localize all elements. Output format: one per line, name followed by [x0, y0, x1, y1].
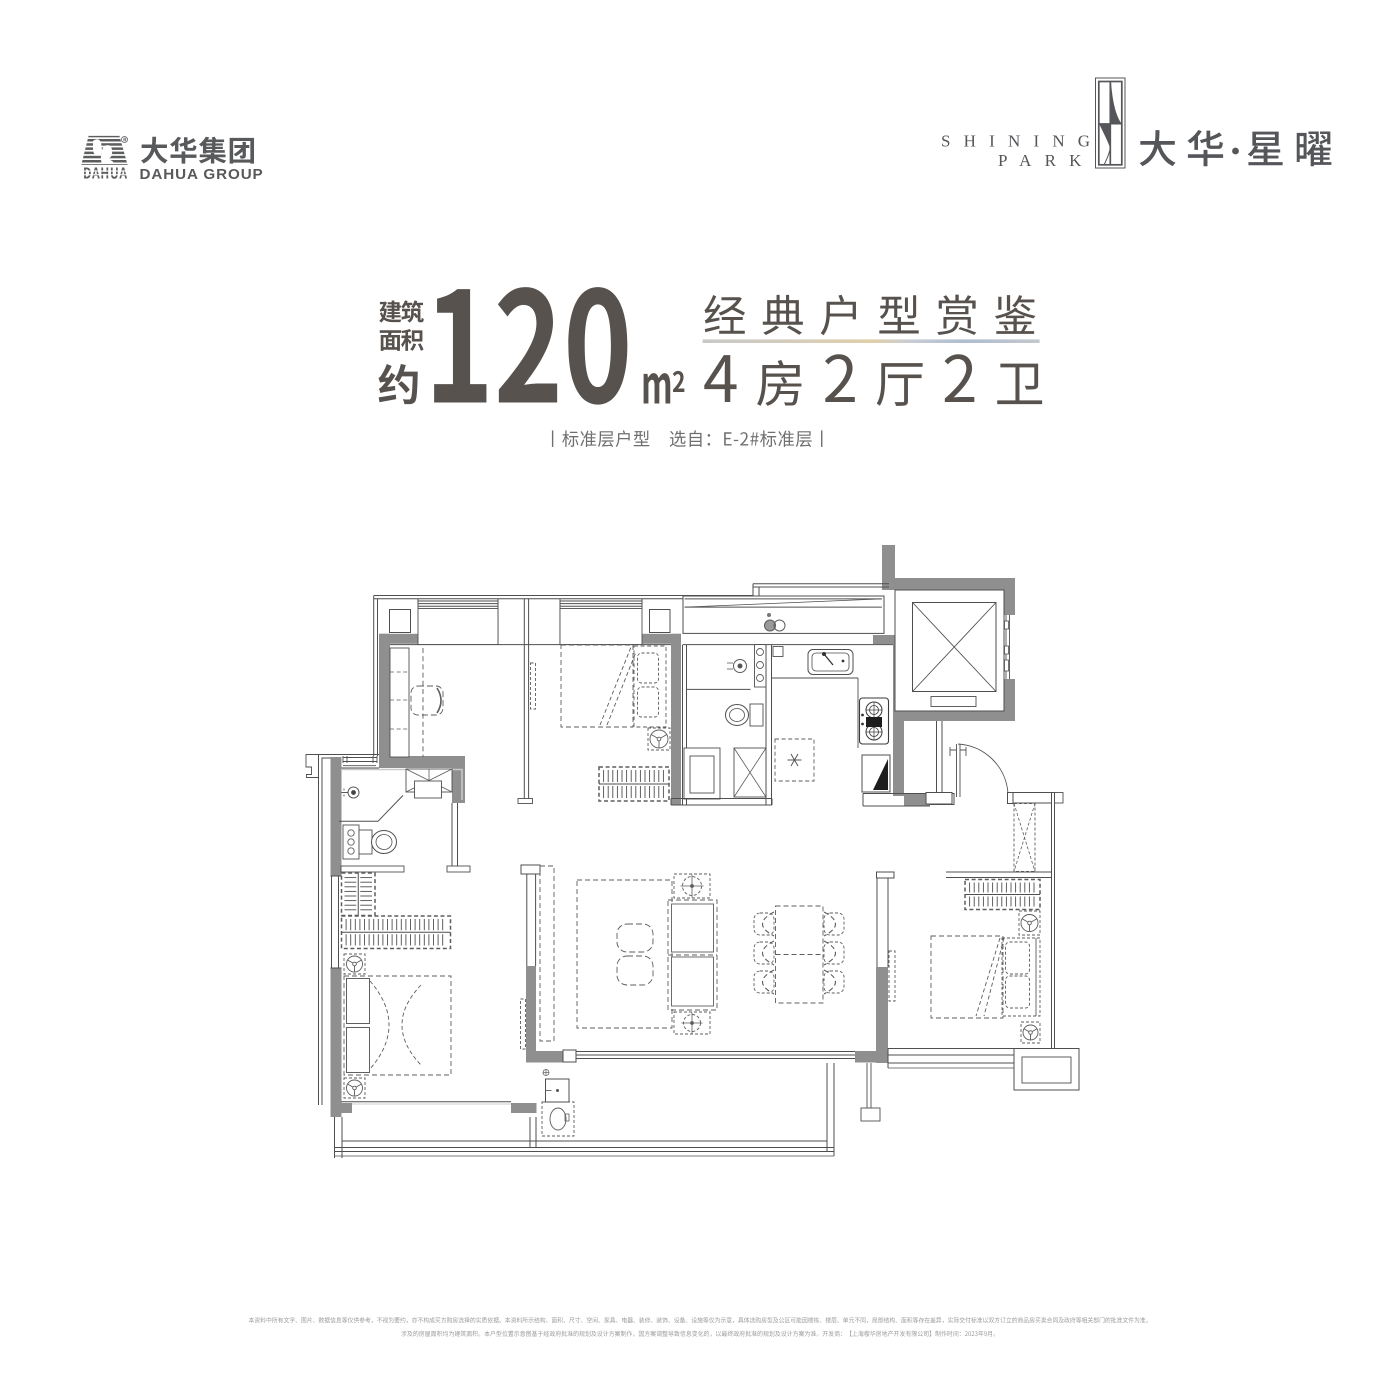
svg-text:SHINING: SHINING [941, 132, 1103, 151]
svg-text:DAHUA GROUP: DAHUA GROUP [140, 166, 264, 183]
svg-text:PARK: PARK [998, 151, 1095, 170]
